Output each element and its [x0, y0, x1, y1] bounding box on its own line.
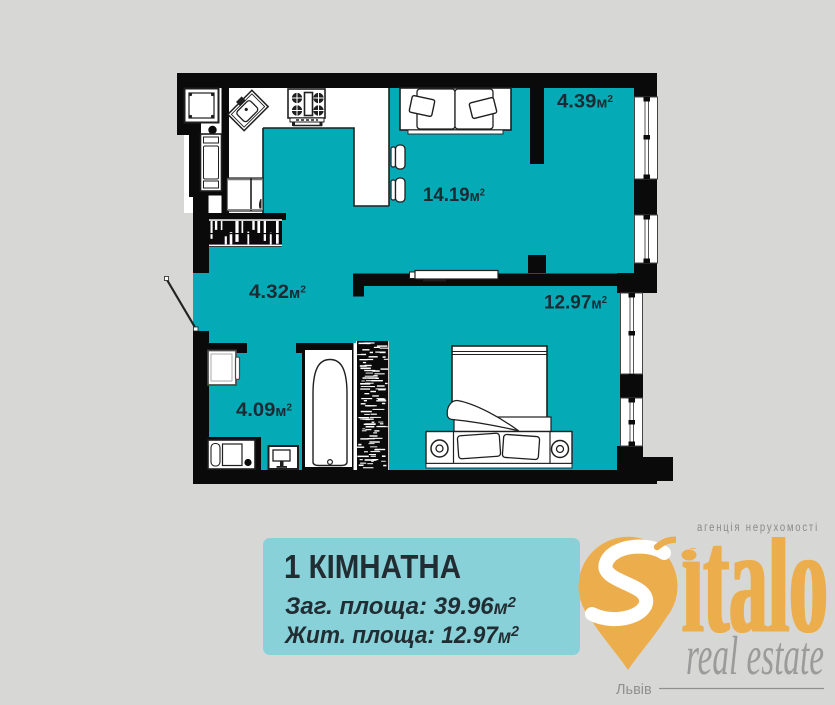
svg-text:Жит. площа: 12.97м2: Жит. площа: 12.97м2: [283, 622, 520, 649]
svg-text:Заг. площа: 39.96м2: Заг. площа: 39.96м2: [285, 593, 517, 620]
svg-text:1 КІМНАТНА: 1 КІМНАТНА: [284, 548, 461, 585]
svg-text:агенція нерухомості: агенція нерухомості: [697, 522, 819, 534]
svg-text:Львів: Львів: [616, 682, 652, 698]
svg-text:real estate: real estate: [686, 625, 824, 686]
